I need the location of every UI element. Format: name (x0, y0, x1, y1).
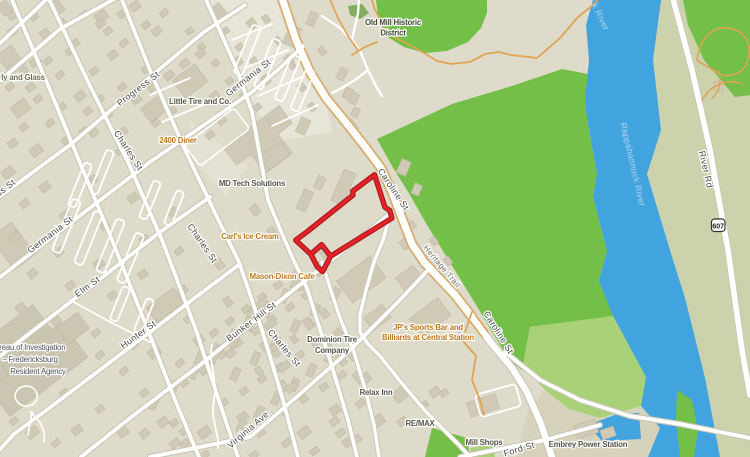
svg-text:JP's Sports Bar and: JP's Sports Bar and (393, 323, 463, 332)
svg-text:– Fredericksburg: – Fredericksburg (2, 355, 57, 364)
svg-text:Billiards at Central Station: Billiards at Central Station (382, 333, 474, 342)
svg-text:MD Tech Solutions: MD Tech Solutions (219, 179, 286, 188)
svg-text:Company: Company (315, 346, 350, 355)
svg-text:Little Tire and Co.: Little Tire and Co. (169, 97, 231, 106)
svg-text:Old Mill Historic: Old Mill Historic (365, 18, 422, 27)
svg-text:RE/MAX: RE/MAX (405, 419, 435, 428)
svg-text:Mill Shops: Mill Shops (466, 438, 504, 447)
svg-text:Mason-Dixon Cafe: Mason-Dixon Cafe (250, 272, 316, 281)
svg-text:Embrey Power Station: Embrey Power Station (549, 440, 628, 449)
svg-text:Carl's Ice Cream: Carl's Ice Cream (221, 232, 279, 241)
svg-text:l Bureau of Investigation: l Bureau of Investigation (0, 343, 65, 352)
svg-text:Relax Inn: Relax Inn (360, 388, 393, 397)
svg-text:ly and Glass: ly and Glass (1, 73, 45, 82)
svg-text:District: District (380, 29, 406, 38)
svg-text:607: 607 (712, 223, 724, 230)
svg-text:2400 Diner: 2400 Diner (159, 136, 197, 145)
svg-text:Dominion Tire: Dominion Tire (307, 335, 358, 344)
svg-text:Resident Agency: Resident Agency (10, 367, 66, 376)
